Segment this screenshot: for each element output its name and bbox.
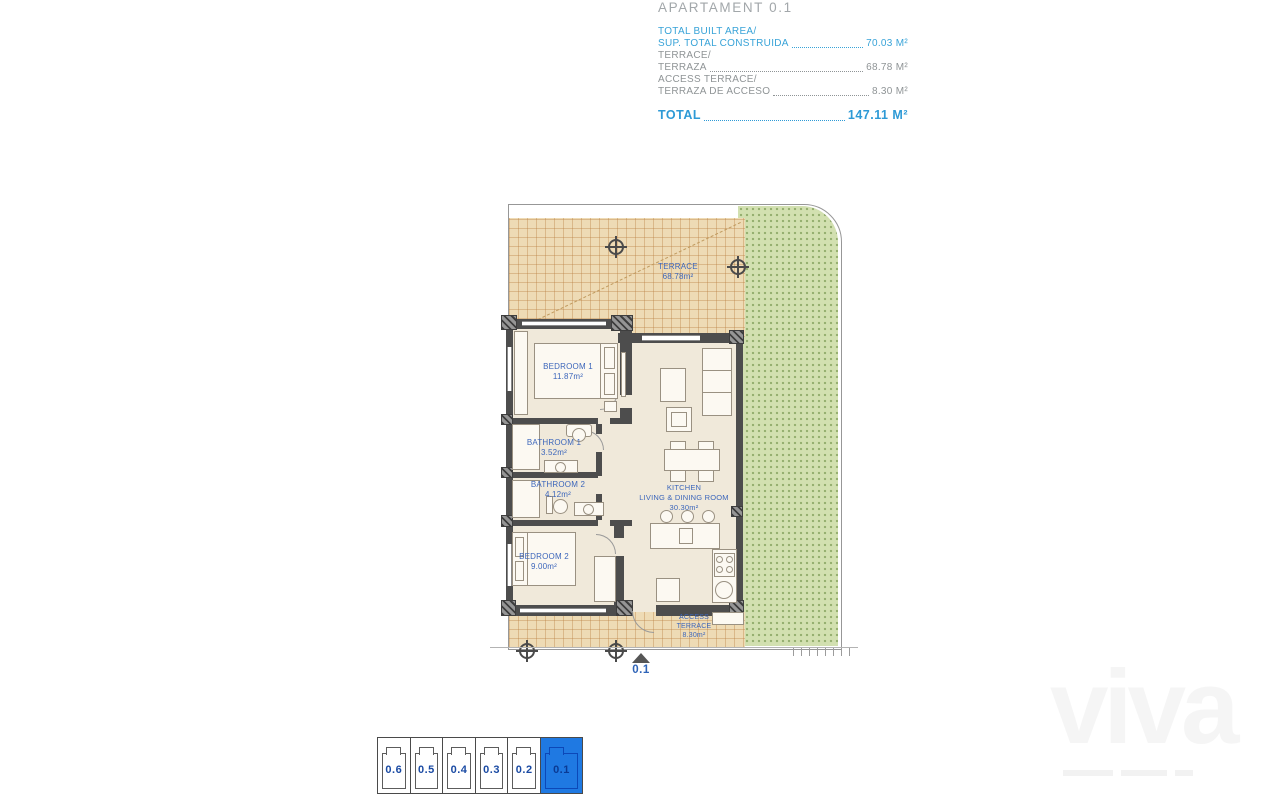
- bedroom1-label: BEDROOM 1 11.87m²: [524, 362, 612, 383]
- room-area: 3.52m²: [518, 448, 590, 458]
- bedroom2-label: BEDROOM 2 9.00m²: [514, 552, 574, 573]
- wall-segment: [610, 418, 632, 424]
- unit-tab-label: 0.4: [443, 738, 475, 793]
- wall-segment: [596, 452, 602, 476]
- bathroom1-label: BATHROOM 1 3.52m²: [518, 438, 590, 459]
- page-title: APARTAMENT 0.1: [658, 0, 793, 15]
- burner-icon: [716, 566, 723, 573]
- unit-tab-label: 0.2: [508, 738, 540, 793]
- island-sink: [679, 528, 693, 544]
- row-value: 8.30 M²: [872, 86, 908, 98]
- burner-icon: [726, 556, 733, 563]
- pillar: [616, 600, 633, 616]
- wall-segment: [620, 408, 632, 418]
- room-name-2: LIVING & DINING ROOM: [634, 493, 734, 503]
- kitchen-label: KITCHEN LIVING & DINING ROOM 30.30m²: [634, 483, 734, 512]
- summary-row-built-area: TOTAL BUILT AREA/ SUP. TOTAL CONSTRUIDA …: [658, 26, 908, 49]
- pillar: [611, 315, 633, 331]
- row-label-2: TERRAZA: [658, 62, 707, 74]
- summary-total-row: TOTAL 147.11 M²: [658, 108, 908, 122]
- total-value: 147.11 M²: [848, 108, 908, 122]
- survey-cross-icon: [730, 259, 746, 275]
- dotted-leader: [773, 95, 869, 96]
- north-arrow-icon: [632, 653, 650, 663]
- bathroom2-label: BATHROOM 2 4.12m²: [522, 480, 594, 501]
- room-name: TERRACE: [640, 262, 716, 272]
- unit-selector: 0.6 0.5 0.4 0.3 0.2 0.1: [377, 737, 583, 794]
- page: APARTAMENT 0.1 TOTAL BUILT AREA/ SUP. TO…: [0, 0, 1280, 800]
- garden-area: [738, 206, 838, 646]
- toilet-icon: [553, 499, 568, 514]
- fence-tick: [833, 648, 834, 656]
- pillar: [501, 600, 516, 616]
- tv-board: [621, 352, 626, 397]
- unit-tab-label: 0.1: [541, 738, 582, 793]
- dotted-leader: [710, 71, 863, 72]
- burner-icon: [716, 556, 723, 563]
- survey-cross-icon: [608, 643, 624, 659]
- summary-panel: APARTAMENT 0.1 TOTAL BUILT AREA/ SUP. TO…: [658, 0, 793, 15]
- room-name: ACCESS: [664, 614, 724, 623]
- unit-tab-label: 0.6: [378, 738, 410, 793]
- unit-tab-0-1-active[interactable]: 0.1: [541, 738, 582, 793]
- window: [522, 321, 606, 326]
- terrace-label: TERRACE 68.78m²: [640, 262, 716, 283]
- sink-icon: [555, 462, 566, 473]
- wall-segment: [736, 333, 743, 616]
- unit-tab-0-4[interactable]: 0.4: [443, 738, 476, 793]
- unit-tab-label: 0.5: [411, 738, 443, 793]
- room-name: BATHROOM 1: [518, 438, 590, 448]
- row-label: ACCESS TERRACE/: [658, 74, 908, 86]
- ground-line: [490, 647, 858, 648]
- watermark-text-bar: [1063, 770, 1113, 776]
- summary-row-terrace: TERRACE/ TERRAZA 68.78 M²: [658, 50, 908, 73]
- watermark-text-bar: [1121, 770, 1167, 776]
- fence-tick: [793, 648, 794, 656]
- room-area: 4.12m²: [522, 490, 594, 500]
- sofa-cushion-line: [703, 392, 731, 393]
- pillar: [501, 315, 517, 330]
- dotted-leader: [792, 47, 863, 48]
- room-area: 30.30m²: [634, 503, 734, 513]
- room-name-2: TERRACE: [664, 623, 724, 632]
- unit-tab-label: 0.3: [476, 738, 508, 793]
- nightstand: [604, 401, 617, 412]
- room-area: 8.30m²: [664, 632, 724, 641]
- summary-row-access-terrace: ACCESS TERRACE/ TERRAZA DE ACCESO 8.30 M…: [658, 74, 908, 97]
- row-label-2: TERRAZA DE ACCESO: [658, 86, 770, 98]
- pillar: [729, 330, 744, 344]
- unit-tab-0-3[interactable]: 0.3: [476, 738, 509, 793]
- room-name: KITCHEN: [634, 483, 734, 493]
- access-terrace-label: ACCESS TERRACE 8.30m²: [664, 614, 724, 640]
- sink-icon: [583, 504, 594, 515]
- survey-cross-icon: [519, 643, 535, 659]
- room-name: BEDROOM 2: [514, 552, 574, 562]
- unit-tab-0-5[interactable]: 0.5: [411, 738, 444, 793]
- unit-marker: 0.1: [627, 664, 655, 676]
- fence-tick: [825, 648, 826, 656]
- unit-tab-0-6[interactable]: 0.6: [378, 738, 411, 793]
- fence-tick: [841, 648, 842, 656]
- sliding-door: [642, 335, 700, 341]
- wall-segment: [614, 526, 624, 538]
- fence-tick: [849, 648, 850, 656]
- kitchen-cabinet: [656, 578, 680, 602]
- row-value: 68.78 M²: [866, 62, 908, 74]
- window: [507, 347, 512, 391]
- room-name: BATHROOM 2: [522, 480, 594, 490]
- burner-icon: [726, 566, 733, 573]
- sofa-cushion-line: [703, 370, 731, 371]
- dotted-leader: [704, 120, 845, 121]
- dining-table: [664, 449, 720, 471]
- total-label: TOTAL: [658, 108, 701, 122]
- armchair: [660, 368, 686, 402]
- wall-segment: [596, 424, 602, 434]
- room-area: 9.00m²: [514, 562, 574, 572]
- bedroom2-wardrobe: [594, 556, 616, 602]
- watermark-text-bar: [1175, 770, 1193, 776]
- row-label: TOTAL BUILT AREA/: [658, 26, 908, 38]
- unit-tab-0-2[interactable]: 0.2: [508, 738, 541, 793]
- sofa: [702, 348, 732, 416]
- row-label-2: SUP. TOTAL CONSTRUIDA: [658, 38, 789, 50]
- fence-tick: [817, 648, 818, 656]
- row-label: TERRACE/: [658, 50, 908, 62]
- coffee-table-inner: [671, 412, 687, 427]
- fence-tick: [809, 648, 810, 656]
- fence-tick: [801, 648, 802, 656]
- room-name: BEDROOM 1: [524, 362, 612, 372]
- wall-segment: [506, 520, 598, 526]
- room-area: 68.78m²: [640, 272, 716, 282]
- kitchen-sink-icon: [715, 581, 733, 599]
- survey-cross-icon: [608, 239, 624, 255]
- room-area: 11.87m²: [524, 372, 612, 382]
- watermark-logo: viva: [1050, 648, 1234, 768]
- row-value: 70.03 M²: [866, 38, 908, 50]
- window: [520, 608, 606, 613]
